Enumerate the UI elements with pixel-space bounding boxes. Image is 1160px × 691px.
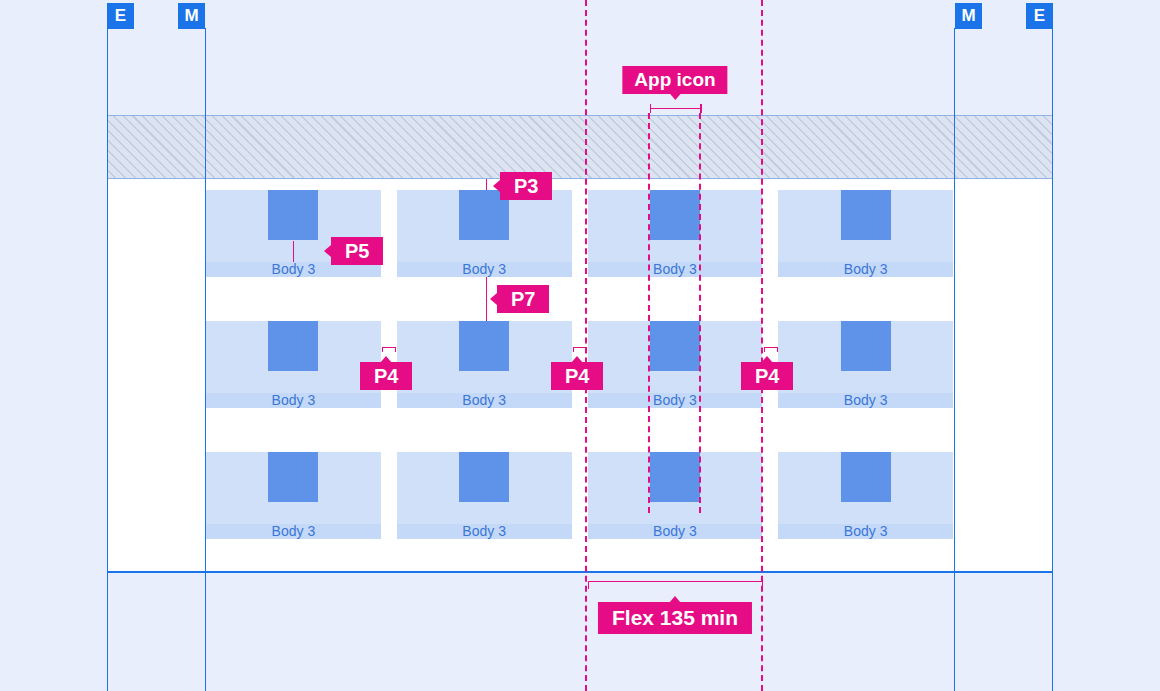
tile-label: Body 3: [462, 524, 506, 539]
tile-label: Body 3: [272, 524, 316, 539]
app-tile: Body 3: [588, 190, 763, 277]
tile-label-strip: Body 3: [206, 524, 381, 539]
pointer-up-icon: [669, 596, 681, 603]
tile-label-strip: Body 3: [588, 262, 763, 277]
content-bottom-boundary: [107, 571, 1053, 573]
tile-label: Body 3: [653, 524, 697, 539]
pointer-left-icon: [490, 293, 497, 305]
pointer-left-icon: [324, 245, 331, 257]
pointer-up-icon: [380, 356, 392, 363]
p4-label: P4: [374, 365, 398, 388]
tile-label: Body 3: [653, 262, 697, 277]
pointer-left-icon: [493, 180, 500, 192]
app-icon-bracket-tick-right: [700, 104, 702, 113]
flex-min-bracket: [588, 581, 763, 589]
p7-measure-line: [486, 277, 488, 321]
app-tile: Body 3: [778, 190, 953, 277]
app-icon-placeholder: [650, 190, 700, 240]
tile-label: Body 3: [844, 262, 888, 277]
p5-label: P5: [345, 240, 369, 263]
app-icon-placeholder: [650, 321, 700, 371]
tile-label: Body 3: [462, 262, 506, 277]
app-icon-placeholder: [841, 190, 891, 240]
pointer-up-icon: [571, 356, 583, 363]
app-icon-placeholder: [841, 321, 891, 371]
p3-callout: P3: [500, 172, 552, 200]
app-tile: Body 3: [397, 321, 572, 408]
tile-label-strip: Body 3: [778, 393, 953, 408]
app-tile: Body 3: [778, 321, 953, 408]
tile-label: Body 3: [844, 393, 888, 408]
flex-min-label: Flex 135 min: [612, 606, 738, 630]
margin-marker-e-left: E: [107, 3, 134, 29]
p3-measure-line: [486, 179, 488, 190]
app-icon-callout-label: App icon: [634, 69, 715, 91]
tile-label: Body 3: [272, 262, 316, 277]
tile-label-strip: Body 3: [778, 524, 953, 539]
tile-label: Body 3: [653, 393, 697, 408]
app-icon-bracket-line: [650, 108, 701, 110]
tile-label-strip: Body 3: [206, 393, 381, 408]
app-icon-guide-left: [648, 113, 650, 513]
status-bar-hatch-band: [107, 115, 1053, 179]
flex-min-callout: Flex 135 min: [598, 602, 752, 634]
app-icon-placeholder: [459, 321, 509, 371]
tile-label: Body 3: [272, 393, 316, 408]
margin-marker-e-right: E: [1026, 3, 1053, 29]
app-icon-placeholder: [841, 452, 891, 502]
p4-callout-left: P4: [360, 362, 412, 390]
app-icon-placeholder: [650, 452, 700, 502]
tile-label-strip: Body 3: [778, 262, 953, 277]
app-icon-placeholder: [268, 452, 318, 502]
pointer-down-icon: [669, 93, 681, 100]
app-icon-callout: App icon: [622, 66, 727, 94]
app-tile: Body 3: [206, 321, 381, 408]
app-tile: Body 3: [778, 452, 953, 539]
p4-callout-right: P4: [741, 362, 793, 390]
app-tile: Body 3: [397, 190, 572, 277]
app-tile: Body 3: [206, 452, 381, 539]
margin-marker-m-right: M: [955, 3, 982, 29]
tile-label: Body 3: [844, 524, 888, 539]
app-tile: Body 3: [588, 452, 763, 539]
app-tile: Body 3: [588, 321, 763, 408]
tile-label-strip: Body 3: [397, 393, 572, 408]
app-icon-placeholder: [268, 190, 318, 240]
flex-guide-left: [585, 0, 587, 691]
tile-label-strip: Body 3: [397, 524, 572, 539]
margin-guide-e-right: [1052, 28, 1053, 691]
p3-label: P3: [514, 175, 538, 198]
app-icon-guide-right: [699, 113, 701, 513]
p4-gap-bracket-left: [382, 347, 396, 352]
p7-callout: P7: [497, 285, 549, 313]
margin-guide-e-left: [107, 28, 108, 691]
p4-gap-bracket-middle: [573, 347, 587, 352]
app-tile: Body 3: [397, 452, 572, 539]
p4-gap-bracket-right: [764, 347, 778, 352]
margin-marker-m-left: M: [178, 3, 205, 29]
p4-label: P4: [755, 365, 779, 388]
app-icon-placeholder: [459, 452, 509, 502]
tile-label-strip: Body 3: [588, 524, 763, 539]
tile-label: Body 3: [462, 393, 506, 408]
p5-callout: P5: [331, 237, 383, 265]
pointer-up-icon: [761, 356, 773, 363]
p7-label: P7: [511, 288, 535, 311]
p4-callout-middle: P4: [551, 362, 603, 390]
tile-label-strip: Body 3: [397, 262, 572, 277]
p4-label: P4: [565, 365, 589, 388]
app-icon-placeholder: [268, 321, 318, 371]
app-icon-bracket-tick-left: [650, 104, 652, 113]
margin-guide-m-right: [954, 28, 955, 691]
tile-label-strip: Body 3: [588, 393, 763, 408]
p5-measure-line: [293, 241, 295, 262]
